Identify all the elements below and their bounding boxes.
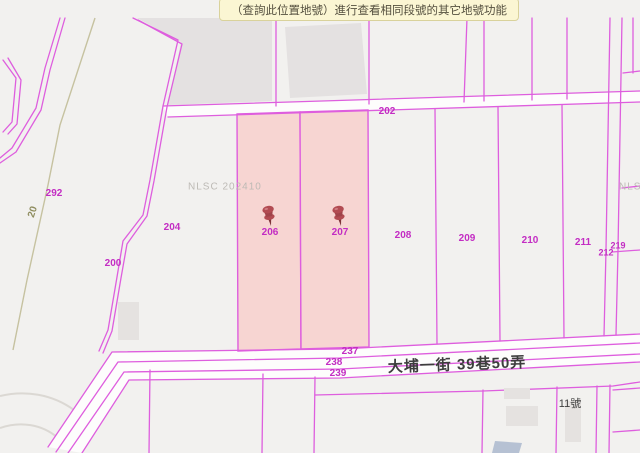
- parcel-label-239: 239: [330, 369, 347, 379]
- parcel-label-292: 292: [46, 189, 63, 199]
- nlsc-watermark-right: NLSC: [619, 182, 640, 193]
- parcel-label-207: 207: [332, 228, 349, 238]
- parcel-label-210: 210: [522, 236, 539, 246]
- query-tooltip: （查詢此位置地號）進行查看相同段號的其它地號功能: [219, 0, 519, 21]
- parcel-label-208: 208: [395, 231, 412, 241]
- parcel-label-237: 237: [342, 347, 359, 357]
- parcel-label-200: 200: [105, 259, 122, 269]
- parcel-label-204: 204: [164, 223, 181, 233]
- contour-line: [13, 18, 95, 350]
- map-viewport[interactable]: NLSC 202410 NLSC 292 204 200 206 207 208…: [0, 0, 640, 453]
- parcel-label-206: 206: [262, 228, 279, 238]
- parcel-label-202: 202: [379, 107, 396, 117]
- nlsc-watermark: NLSC 202410: [188, 182, 262, 193]
- parcel-label-211: 211: [575, 238, 591, 248]
- parcel-label-212: 212: [598, 249, 613, 258]
- house-number-label: 11號: [559, 395, 581, 411]
- parcel-label-238: 238: [326, 358, 343, 368]
- parcel-label-209: 209: [459, 234, 476, 244]
- gray-zone-polygons: [137, 18, 367, 105]
- map-canvas[interactable]: [0, 0, 640, 453]
